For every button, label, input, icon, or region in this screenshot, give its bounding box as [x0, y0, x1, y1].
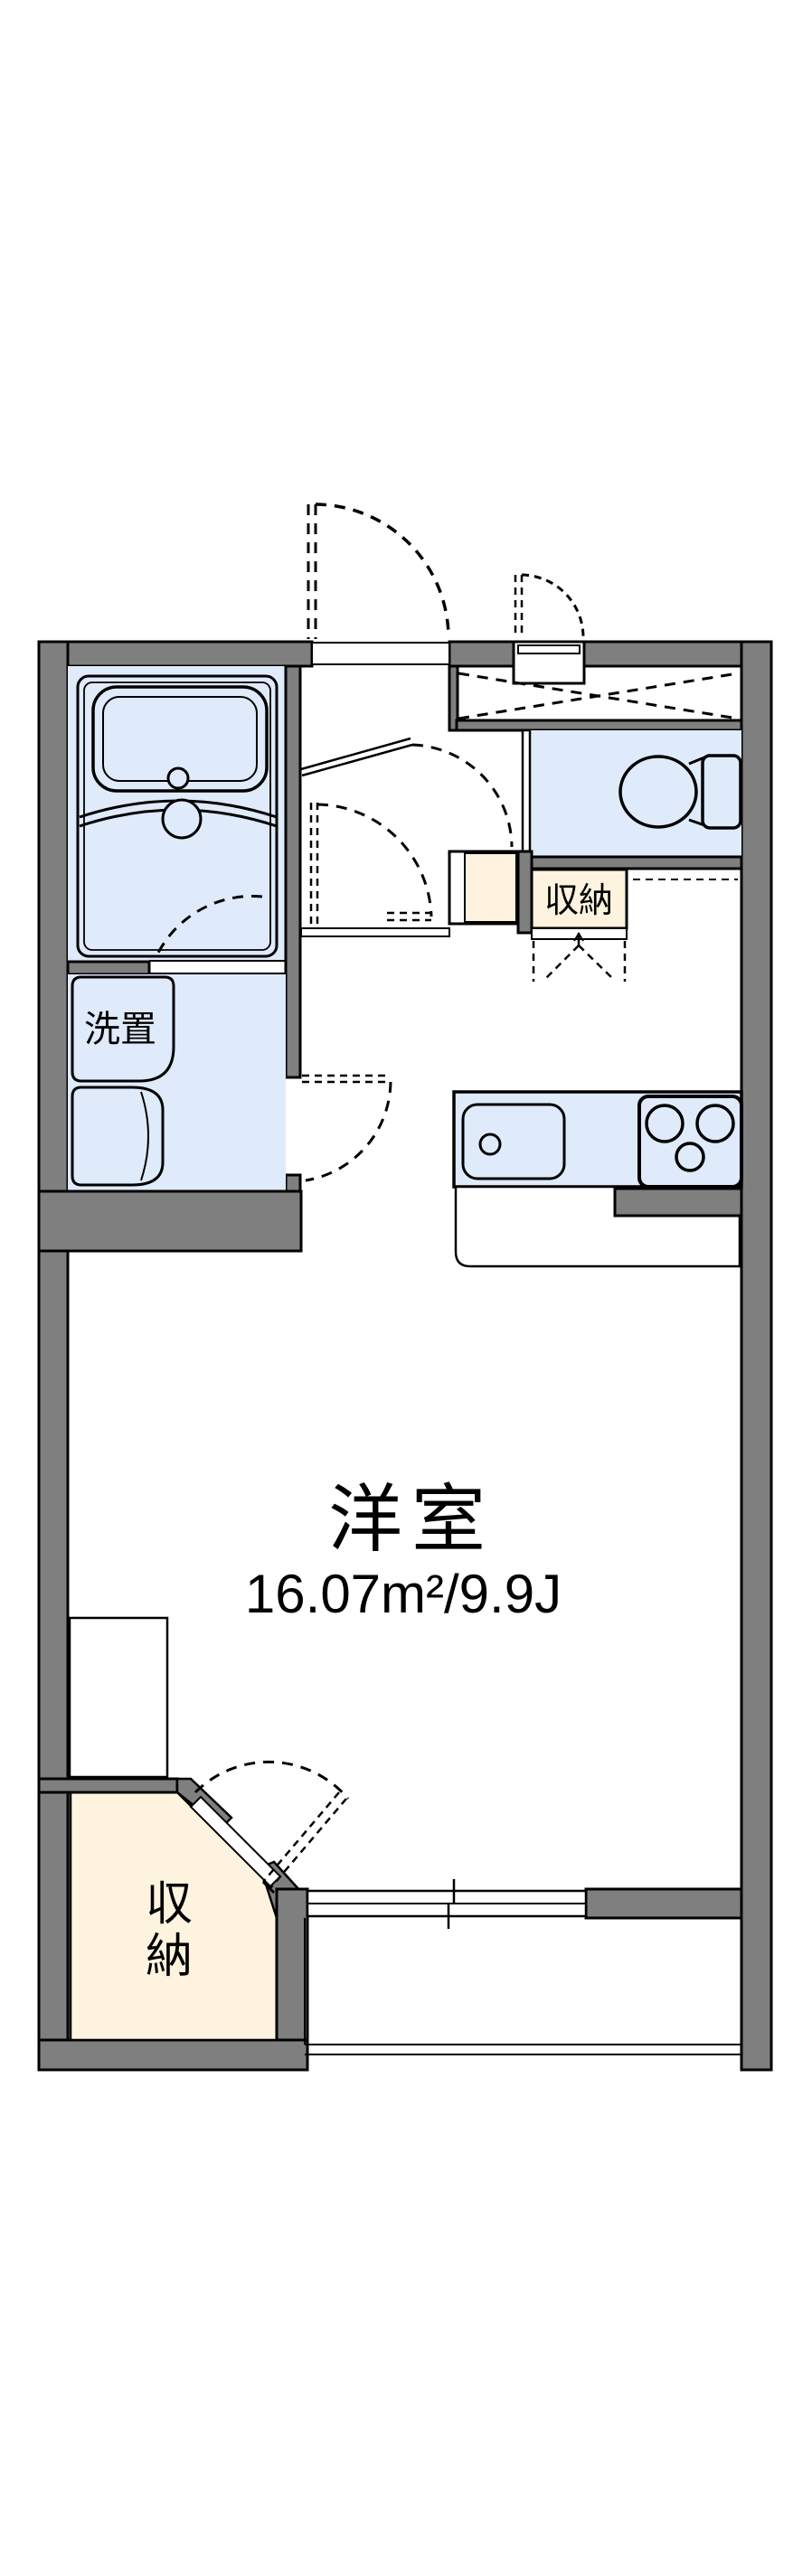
bath-right-wall — [286, 666, 300, 1077]
toilet-bottom-wall — [523, 857, 741, 869]
floor-plan: 収納 洗置 洋室 16 — [0, 0, 812, 2576]
toilet-top-wall — [457, 720, 741, 730]
washer-pan: 洗置 — [72, 977, 174, 1081]
hall-diagonal-step — [301, 738, 412, 776]
hall-door-swing — [412, 745, 512, 847]
vanity-sink — [72, 1087, 163, 1185]
unit-bath-room — [68, 666, 286, 962]
hall-storage-box-b: 収納 — [532, 870, 627, 939]
toilet-fixture — [620, 756, 741, 828]
washroom-door-swing — [302, 1076, 391, 1180]
shoe-shelf-cross — [458, 673, 738, 719]
kitchen-faucet — [480, 1134, 500, 1154]
balcony — [305, 1918, 741, 2054]
hall-storage-door-swing — [533, 933, 625, 982]
entry-door-swing — [308, 504, 448, 639]
floor-plan-page: 収納 洗置 洋室 16 — [0, 0, 812, 2576]
main-room-label: 洋室 — [328, 1479, 495, 1561]
closet-label-char2: 納 — [146, 1931, 193, 1983]
bath-drain — [163, 800, 201, 838]
kitchen-counter — [454, 1092, 741, 1187]
washer-label: 洗置 — [84, 1010, 156, 1049]
washroom-hall-door-swing — [311, 803, 431, 926]
entry-alcove — [514, 642, 584, 683]
sliding-window — [307, 1879, 586, 1929]
bath-threshold-lines — [149, 961, 286, 973]
wall-niche — [70, 1618, 167, 1777]
toilet-left-wall — [523, 730, 530, 857]
entry-door-opening — [312, 643, 449, 664]
window-right-wall — [586, 1889, 741, 1918]
hall-storage-label: 収納 — [544, 882, 613, 920]
hall-storage-box-a — [449, 851, 518, 924]
washroom-bottom-wall — [39, 1191, 301, 1251]
closet-top-wall — [39, 1779, 177, 1792]
storage-divider-stub — [518, 851, 532, 933]
closet-right-wall — [277, 1889, 307, 2040]
main-room-area: 16.07m²/9.9J — [245, 1564, 562, 1624]
kitchen-wall-stub — [615, 1189, 741, 1216]
alcove-door-swing — [515, 575, 583, 638]
bath-faucet — [168, 768, 188, 788]
closet-room: 収 納 — [39, 1779, 307, 2040]
toilet-tank — [703, 756, 741, 828]
closet-label-char1: 収 — [146, 1878, 193, 1931]
hall-threshold — [301, 928, 449, 936]
bath-washroom-divider — [68, 962, 149, 974]
